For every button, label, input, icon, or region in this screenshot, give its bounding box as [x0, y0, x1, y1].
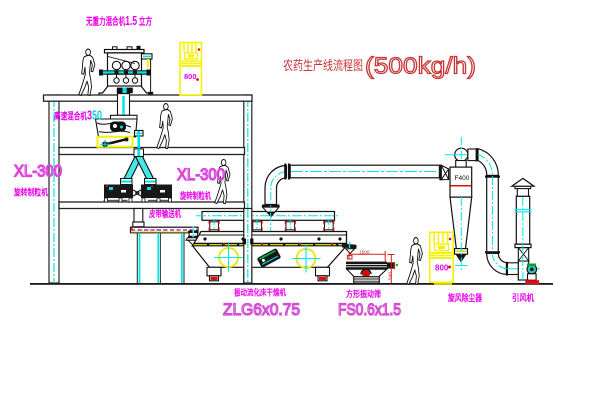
svg-text:800: 800: [435, 264, 449, 273]
svg-text:振动流化床干燥机: 振动流化床干燥机: [234, 288, 286, 298]
svg-text:引风机: 引风机: [512, 292, 534, 303]
svg-text:F400: F400: [455, 175, 470, 182]
svg-text:旋转制粒机: 旋转制粒机: [13, 187, 48, 198]
svg-text:皮带输送机: 皮带输送机: [148, 208, 181, 219]
svg-text:800: 800: [184, 72, 197, 81]
svg-text:FS0.6x1.5: FS0.6x1.5: [338, 300, 401, 319]
svg-text:(500kg/h): (500kg/h): [365, 53, 476, 79]
svg-text:540: 540: [388, 272, 394, 280]
svg-text:旋转制粒机: 旋转制粒机: [179, 190, 211, 201]
svg-text:ZLG6x0.75: ZLG6x0.75: [223, 300, 300, 319]
svg-text:农药生产线流程图: 农药生产线流程图: [283, 58, 363, 73]
svg-text:旋风除尘器: 旋风除尘器: [447, 292, 482, 303]
svg-text:XL-300: XL-300: [177, 165, 225, 184]
svg-text:XL-300: XL-300: [14, 162, 62, 181]
svg-text:1500: 1500: [359, 249, 370, 255]
svg-text:方形振动筛: 方形振动筛: [346, 289, 381, 299]
